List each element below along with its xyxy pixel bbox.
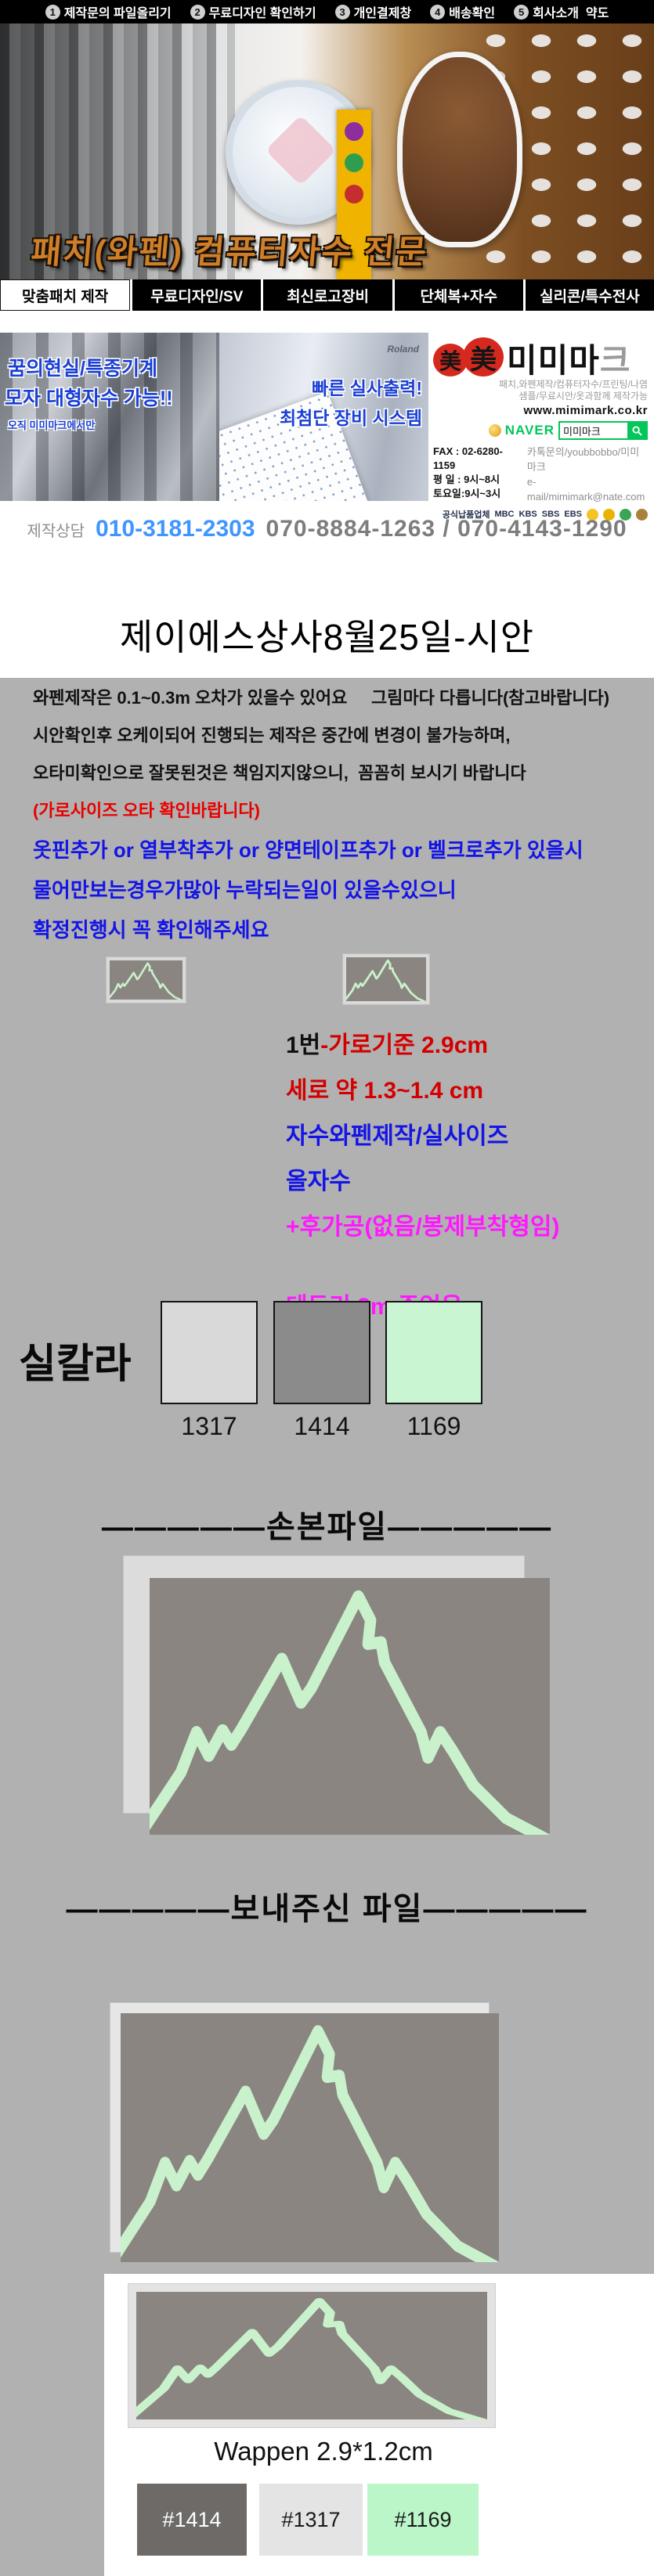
- promo-left-line2: 모자 대형자수 가능!!: [5, 383, 219, 411]
- spec-type: 자수와펜제작/실사이즈: [286, 1116, 559, 1151]
- notice-line-4: (가로사이즈 오타 확인바랍니다): [33, 797, 609, 822]
- mountain-artwork: [110, 960, 182, 1000]
- received-file-image-1: [110, 2002, 490, 2253]
- proof-sheet: 와펜제작은 0.1~0.3m 오차가 있을수 있어요 그림마다 다릅니다(참고바…: [0, 678, 654, 2274]
- contact-label: 제작상담: [27, 518, 85, 541]
- gray-left-strip: [0, 2274, 104, 2576]
- printer-photo: Roland 빠른 실사출력! 최첨단 장비 시스템: [219, 333, 428, 501]
- promo-left-line1: 꿈의현실/특종기계: [8, 353, 219, 381]
- strap-dot: [345, 122, 363, 141]
- menu-item-about[interactable]: 5회사소개 약도: [514, 2, 609, 21]
- naver-search-widget: NAVER: [433, 421, 648, 440]
- naver-hand-icon: [489, 424, 501, 437]
- thread-code-1317: 1317: [161, 1412, 258, 1441]
- wappen-swatch-1414: #1414: [137, 2484, 247, 2556]
- top-menu-bar: 1제작문의 파일올리기 2무료디자인 확인하기 3개인결제창 4배송확인 5회사…: [0, 0, 654, 23]
- email-contact: e-mail/mimimark@nate.com: [527, 474, 648, 504]
- menu-number-badge: 1: [45, 5, 60, 20]
- menu-item-payment[interactable]: 3개인결제창: [335, 2, 412, 21]
- menu-item-free-design[interactable]: 2무료디자인 확인하기: [190, 2, 316, 21]
- section-heading-received: —————보내주신 파일—————: [0, 1883, 654, 1929]
- naver-search-button[interactable]: [627, 422, 646, 439]
- menu-item-shipping[interactable]: 4배송확인: [430, 2, 495, 21]
- spec-block: 1번-가로기준 2.9cm 세로 약 1.3~1.4 cm 자수와펜제작/실사이…: [286, 1025, 559, 1332]
- menu-number-badge: 4: [430, 5, 445, 20]
- page-title: 제이에스상사8월25일-시안: [0, 609, 654, 661]
- website-url[interactable]: www.mimimark.co.kr: [433, 404, 648, 417]
- notice-line-6: 물어만보는경우가많아 누락되는일이 있을수있으니: [33, 874, 609, 903]
- brand-name: 미미마: [507, 345, 600, 376]
- promo-mid-line1: 빠른 실사출력!: [280, 373, 422, 400]
- spec-stitch: 올자수: [286, 1162, 559, 1196]
- wappen-size-caption: Wappen 2.9*1.2cm: [104, 2437, 543, 2466]
- mimimark-proof-page: 1제작문의 파일올리기 2무료디자인 확인하기 3개인결제창 4배송확인 5회사…: [0, 0, 654, 2576]
- menu-number-badge: 3: [335, 5, 350, 20]
- brand-tagline-1: 패치,와펜제작/컴퓨터자수/프린팅/나염: [433, 379, 648, 391]
- promo-strip: 꿈의현실/특종기계 모자 대형자수 가능!! 오직 미미마크에서만 Roland…: [0, 333, 654, 501]
- thread-code-1169: 1169: [385, 1412, 482, 1441]
- fax-number: FAX : 02-6280-1159: [433, 445, 518, 473]
- promo-mid-line2: 최첨단 장비 시스템: [280, 403, 422, 430]
- weekday-hours: 평 일 : 9시~8시: [433, 473, 518, 487]
- dog-patch-photo: [397, 52, 522, 247]
- thread-code-1414: 1414: [273, 1412, 370, 1441]
- mountain-artwork: [150, 1578, 550, 1835]
- spec-finish: +후가공(없음/봉제부착형임): [286, 1207, 559, 1241]
- patch-thumbnail-2: [342, 953, 430, 1005]
- notice-block: 와펜제작은 0.1~0.3m 오차가 있을수 있어요 그림마다 다릅니다(참고바…: [33, 684, 609, 954]
- saturday-hours: 토요일:9시~3시: [433, 487, 518, 501]
- naver-logo: NAVER: [505, 423, 555, 438]
- notice-line-2: 시안확인후 오케이되어 진행되는 제작은 중간에 변경이 불가능하며,: [33, 722, 609, 747]
- patch-thumbnail-1: [106, 957, 186, 1003]
- notice-line-3: 오타미확인으로 잘못된것은 책임지지않으니, 꼼꼼히 보시기 바랍니다: [33, 759, 609, 784]
- tab-silicone-transfer[interactable]: 실리콘/특수전사: [526, 279, 654, 311]
- hanja-logo-icon: 美: [463, 337, 504, 376]
- tab-custom-patch[interactable]: 맞춤패치 제작: [0, 279, 130, 311]
- promo-left-line3: 오직 미미마크에서만: [8, 417, 219, 432]
- menu-label: 무료디자인 확인하기: [209, 2, 316, 21]
- strap-dot: [345, 153, 363, 172]
- menu-label: 개인결제창: [354, 2, 412, 21]
- kakao-contact: 카톡문의/youbbobbo/미미마크: [527, 445, 648, 474]
- brand-logo-row: 美 美 미미마 크: [433, 337, 648, 376]
- printer-brand-label: Roland: [387, 344, 419, 355]
- category-tabs: 맞춤패치 제작 무료디자인/SV 최신로고장비 단체복+자수 실리콘/특수전사: [0, 279, 654, 311]
- hero-banner: 패치(와펜) 컴퓨터자수 전문: [0, 23, 654, 279]
- landline-numbers: 070-8884-1263 / 070-4143-1290: [266, 516, 627, 542]
- mountain-artwork: [121, 2013, 499, 2262]
- menu-item-upload[interactable]: 1제작문의 파일올리기: [45, 2, 172, 21]
- menu-number-badge: 2: [190, 5, 205, 20]
- contact-row: 제작상담 010-3181-2303 070-8884-1263 / 070-4…: [0, 510, 654, 548]
- spec-width-line: 1번-가로기준 2.9cm: [286, 1025, 559, 1060]
- spec-height: 세로 약 1.3~1.4 cm: [286, 1071, 559, 1105]
- thread-swatch-1414: [273, 1301, 370, 1404]
- notice-line-1: 와펜제작은 0.1~0.3m 오차가 있을수 있어요 그림마다 다릅니다(참고바…: [33, 684, 609, 709]
- wappen-swatch-1169: #1169: [367, 2484, 479, 2556]
- tab-free-design[interactable]: 무료디자인/SV: [132, 279, 261, 311]
- spec-number: 1번: [286, 1032, 320, 1058]
- brand-name-suffix: 크: [600, 345, 631, 376]
- section-heading-draft: —————손본파일—————: [0, 1501, 654, 1547]
- menu-number-badge: 5: [514, 5, 529, 20]
- mountain-artwork: [136, 2292, 487, 2419]
- spec-width: -가로기준 2.9cm: [320, 1032, 488, 1058]
- tab-uniform-embroidery[interactable]: 단체복+자수: [395, 279, 523, 311]
- menu-label: 회사소개 약도: [533, 2, 609, 21]
- thread-color-label: 실칼라: [19, 1331, 132, 1389]
- mountain-artwork: [346, 957, 426, 1001]
- cap-machine-photo: 꿈의현실/특종기계 모자 대형자수 가능!! 오직 미미마크에서만: [0, 333, 219, 501]
- received-file-image-2: [128, 2283, 496, 2428]
- naver-search-input[interactable]: [560, 425, 627, 437]
- draft-file-image: [123, 1555, 525, 1814]
- magnifier-icon: [632, 426, 642, 436]
- thread-swatch-1317: [161, 1301, 258, 1404]
- notice-line-7: 확정진행시 꼭 확인해주세요: [33, 914, 609, 943]
- wappen-swatch-1317: #1317: [259, 2484, 363, 2556]
- tab-logo-equipment[interactable]: 최신로고장비: [263, 279, 392, 311]
- thread-swatch-1169: [385, 1301, 482, 1404]
- brand-info-panel: 美 美 미미마 크 패치,와펜제작/컴퓨터자수/프린팅/나염 샘플/무료시안/옷…: [428, 333, 654, 501]
- menu-label: 배송확인: [449, 2, 495, 21]
- mobile-phone-number: 010-3181-2303: [96, 516, 255, 542]
- strap-dot: [345, 185, 363, 204]
- notice-line-5: 옷핀추가 or 열부착추가 or 양면테이프추가 or 벨크로추가 있을시: [33, 834, 609, 863]
- brand-tagline-2: 샘플/무료시안/옷과함께 제작가능: [433, 391, 648, 402]
- banner-headline: 패치(와펜) 컴퓨터자수 전문: [29, 225, 430, 273]
- received-file-panel: Wappen 2.9*1.2cm #1414 #1317 #1169: [104, 2274, 654, 2576]
- menu-label: 제작문의 파일올리기: [64, 2, 172, 21]
